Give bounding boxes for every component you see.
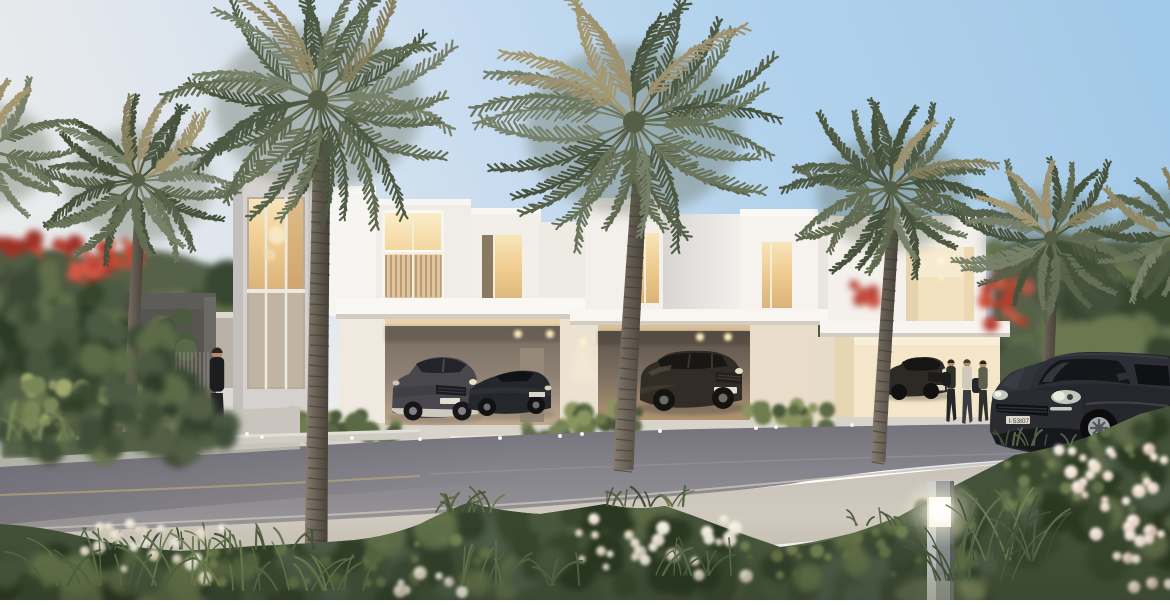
svg-text:I·53I07: I·53I07 [1009,418,1030,425]
